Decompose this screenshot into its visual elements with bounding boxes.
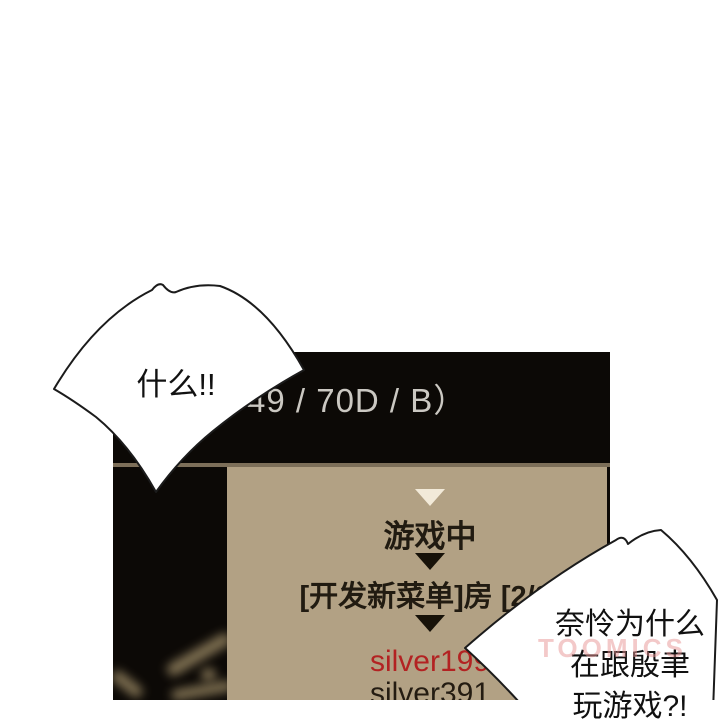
down-triangle-icon xyxy=(415,553,445,570)
blurred-shape xyxy=(201,668,216,681)
blurred-shape xyxy=(113,668,145,700)
comic-panel: 49 / 70D / B） 游戏中 [开发新菜单]房 [2/2] silver1… xyxy=(0,0,720,700)
game-header-stats: 49 / 70D / B） xyxy=(247,374,467,422)
speech-text-left: 什么!! xyxy=(130,359,222,404)
speech-text-right: 奈怜为什么 在跟殷聿 玩游戏?! xyxy=(545,604,715,727)
speech-line: 玩游戏?! xyxy=(545,686,715,727)
watermark-text: TOOMICS xyxy=(538,633,687,664)
game-window: 49 / 70D / B） 游戏中 [开发新菜单]房 [2/2] silver1… xyxy=(113,352,610,700)
game-status-label: 游戏中 xyxy=(253,511,607,556)
down-triangle-icon xyxy=(415,489,445,506)
down-triangle-icon xyxy=(415,615,445,632)
blurred-shape xyxy=(165,631,234,678)
blurred-shape xyxy=(171,680,234,700)
